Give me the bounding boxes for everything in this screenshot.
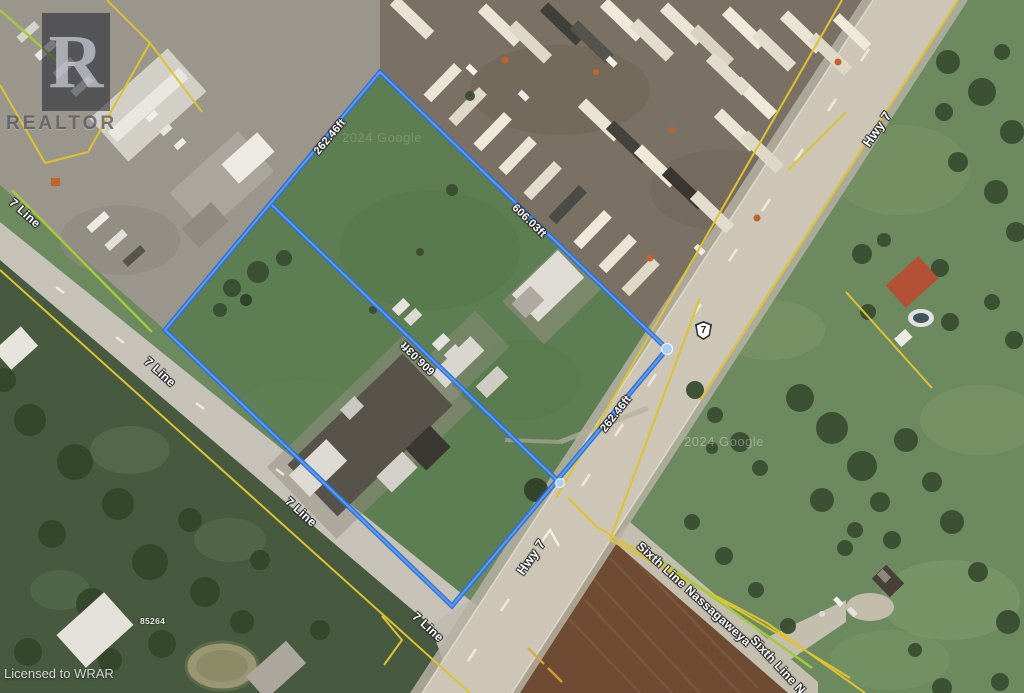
google-watermark-1: 2024 Google <box>342 130 422 145</box>
cul-de-sac <box>846 593 894 621</box>
realtor-logo-wordmark: REALTOR <box>6 113 117 135</box>
aerial-property-map: 262.46ft 606.03ft 606.03ft 262.46ft 7 Li… <box>0 0 1024 693</box>
boundary-vertex <box>662 344 673 355</box>
google-watermark-2: 2024 Google <box>684 434 764 449</box>
realtor-watermark: R REALTOR <box>6 13 117 135</box>
realtor-logo-letter: R <box>49 24 104 100</box>
satellite-imagery <box>0 0 1024 693</box>
license-watermark: Licensed to WRAR <box>4 666 114 681</box>
boundary-vertex <box>556 479 565 488</box>
realtor-logo-block: R <box>42 13 110 111</box>
shield-number: 7 <box>701 325 707 336</box>
address-label: 85264 <box>140 616 165 626</box>
